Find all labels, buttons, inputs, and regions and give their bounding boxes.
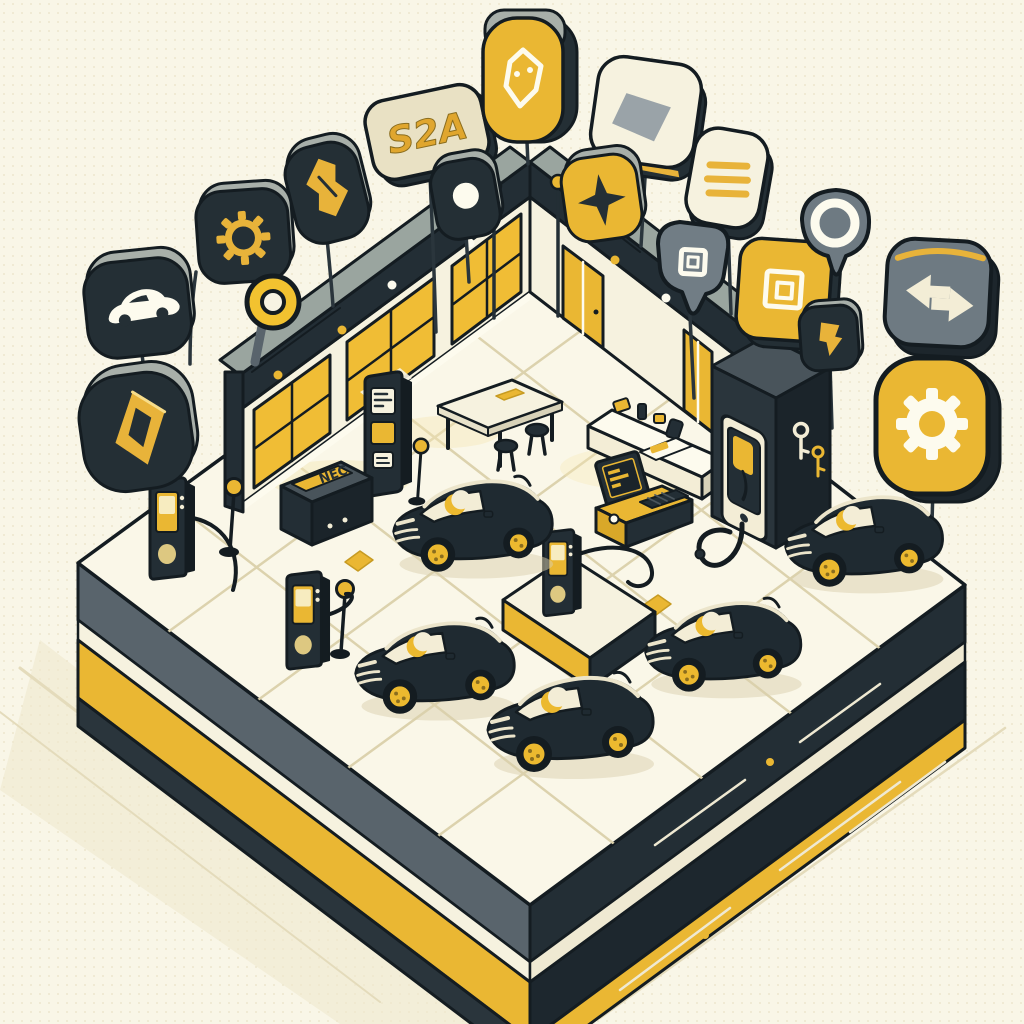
isometric-ev-hub-illustration: NEC <box>0 0 1024 1024</box>
gear-badge-yellow <box>876 358 1000 502</box>
list-icon <box>703 161 751 198</box>
charging-pedestal <box>543 530 580 616</box>
sparkle-badge <box>557 142 650 244</box>
flag-badge <box>798 298 865 372</box>
charging-tower <box>150 478 194 579</box>
car-badge <box>80 244 198 361</box>
charging-tower <box>287 572 329 669</box>
swap-badge <box>883 237 1001 359</box>
gear-icon <box>896 388 968 460</box>
gear-badge-dark <box>194 179 297 285</box>
record-badge <box>426 146 508 243</box>
gem-badge <box>483 10 577 142</box>
illustration-stage: NEC <box>0 0 1024 1024</box>
